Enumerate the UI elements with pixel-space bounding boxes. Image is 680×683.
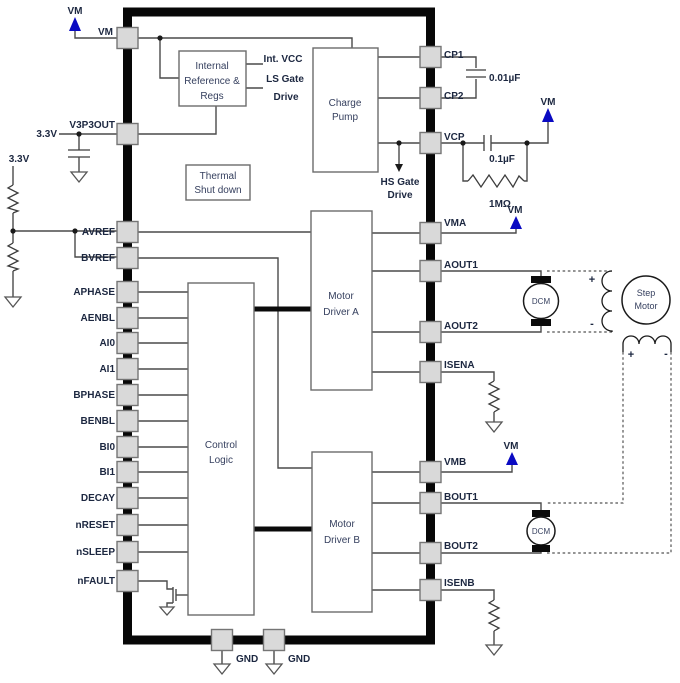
vm-arrow-top-icon [69, 17, 81, 31]
pin-pad-CP1 [420, 47, 441, 68]
diagram-svg: Internal Reference & Regs Int. VCC LS Ga… [0, 0, 680, 683]
control-logic-line1: Control [205, 440, 237, 451]
pin-pad-VMA [420, 223, 441, 244]
thermal-line2: Shut down [194, 185, 241, 196]
v33-label-v3p3: 3.3V [36, 129, 57, 140]
driver-a-line2: Driver A [323, 307, 359, 318]
pin-label-VCP: VCP [444, 132, 465, 143]
vm-label-top: VM [68, 6, 83, 17]
pin-pad-AOUT2 [420, 322, 441, 343]
pin-label-ISENA: ISENA [444, 360, 475, 371]
pin-pad-nSLEEP [117, 542, 138, 563]
pin-label-nRESET: nRESET [76, 520, 115, 531]
v33-label-divider: 3.3V [9, 154, 30, 165]
nfault-transistor [138, 581, 188, 615]
dcm-b-label: DCM [532, 527, 551, 536]
pin-label-BI1: BI1 [99, 467, 115, 478]
pin-pad-ISENA [420, 362, 441, 383]
isena-sense-resistor [441, 372, 502, 432]
pin-label-nSLEEP: nSLEEP [76, 547, 115, 558]
pin-pad-BENBL [117, 411, 138, 432]
nfault-ground-icon [160, 607, 174, 615]
block-motor-driver-b: Motor Driver B [312, 452, 372, 612]
pin-pad-AI1 [117, 359, 138, 380]
v3p3-ground-icon [71, 172, 87, 182]
hs-gate-label-line1: HS Gate [381, 177, 420, 188]
pin-pad-BOUT2 [420, 543, 441, 564]
divider-ground-icon [5, 297, 21, 307]
dcm-a-label: DCM [532, 297, 551, 306]
vm-arrow-vma-icon [510, 216, 522, 229]
charge-pump-line2: Pump [332, 112, 359, 123]
pin-pad-BPHASE [117, 385, 138, 406]
pin-label-BOUT2: BOUT2 [444, 541, 478, 552]
pin-pad-BOUT1 [420, 493, 441, 514]
pin-label-AI0: AI0 [99, 338, 115, 349]
pin-pad-AOUT1 [420, 261, 441, 282]
vm-label-vmb: VM [504, 441, 519, 452]
internal-ref-line2: Reference & [184, 76, 240, 87]
pin-label-VMA: VMA [444, 218, 466, 229]
pin-label-AVREF: AVREF [82, 227, 115, 238]
pin-pad-nFAULT [117, 571, 138, 592]
thermal-line1: Thermal [200, 171, 237, 182]
pin-pad-AVREF [117, 222, 138, 243]
driver-b-line2: Driver B [324, 535, 360, 546]
pin-label-BVREF: BVREF [81, 253, 115, 264]
gnd2-ground-icon [266, 664, 282, 674]
pin-label-DECAY: DECAY [81, 493, 115, 504]
pin-pad-AI0 [117, 333, 138, 354]
winding-a-minus: - [590, 318, 594, 330]
pin-label-ISENB: ISENB [444, 578, 475, 589]
vm-label-vcp: VM [541, 97, 556, 108]
step-motor-line1: Step [637, 288, 656, 298]
pin-label-BOUT1: BOUT1 [444, 492, 478, 503]
pin-label-APHASE: APHASE [73, 287, 115, 298]
pin-pad-nRESET [117, 515, 138, 536]
pin-pad-ISENB [420, 580, 441, 601]
stepper-winding-b: + - [547, 336, 671, 553]
pin-label-GND1: GND [236, 654, 258, 665]
isenb-sense-resistor [441, 590, 502, 655]
block-thermal-shutdown: Thermal Shut down [186, 165, 250, 200]
pin-label-nFAULT: nFAULT [77, 576, 115, 587]
pin-label-AI1: AI1 [99, 364, 115, 375]
pin-pad-VM [117, 28, 138, 49]
driver-b-line1: Motor [329, 519, 355, 530]
pin-pad-DECAY [117, 488, 138, 509]
charge-pump-line1: Charge [329, 98, 362, 109]
pin-pad-APHASE [117, 282, 138, 303]
block-motor-driver-a: Motor Driver A [311, 211, 372, 390]
driver-a-line1: Motor [328, 291, 354, 302]
pin-label-BENBL: BENBL [81, 416, 115, 427]
pin-label-AENBL: AENBL [81, 313, 115, 324]
block-diagram: Internal Reference & Regs Int. VCC LS Ga… [0, 0, 680, 683]
isenb-ground-icon [486, 645, 502, 655]
block-charge-pump: Charge Pump [313, 48, 378, 172]
control-logic-line2: Logic [209, 455, 233, 466]
vcp-junction-dot [396, 140, 401, 145]
pin-pad-VMB [420, 462, 441, 483]
vcp-network: VM 0.1µF 1MΩ [441, 97, 556, 210]
pin-pad-BI0 [117, 437, 138, 458]
internal-ref-line1: Internal [195, 61, 228, 72]
winding-b-minus: - [664, 348, 668, 360]
vm-arrow-vmb-icon [506, 452, 518, 465]
vm-supply-top: VM VM [68, 6, 118, 38]
ls-gate-label-line1: LS Gate [266, 74, 304, 85]
vcp-cap-value: 0.1µF [489, 154, 515, 165]
isena-ground-icon [486, 422, 502, 432]
ls-gate-label-line2: Drive [273, 92, 298, 103]
pin-pad-V3P3OUT [117, 124, 138, 145]
chip-outline [128, 12, 431, 640]
block-internal-reference: Internal Reference & Regs [179, 51, 246, 106]
step-motor: Step Motor [622, 276, 670, 324]
gnd1-ground-icon [214, 664, 230, 674]
pin-pad-CP2 [420, 88, 441, 109]
hs-gate-arrow [395, 164, 403, 172]
pin-label-VM: VM [98, 27, 113, 38]
pin-label-V3P3OUT: V3P3OUT [69, 120, 115, 131]
pin-label-AOUT1: AOUT1 [444, 260, 478, 271]
pin-label-BPHASE: BPHASE [73, 390, 115, 401]
left-pin-labels: V3P3OUT AVREF BVREF APHASE AENBL AI0 AI1… [69, 120, 115, 587]
pin-pad-BI1 [117, 462, 138, 483]
hs-gate-label-line2: Drive [387, 190, 412, 201]
pin-label-CP1: CP1 [444, 50, 464, 61]
pin-label-BI0: BI0 [99, 442, 115, 453]
step-motor-line2: Motor [634, 301, 657, 311]
cp-cap-value: 0.01µF [489, 73, 520, 84]
vm-junction-dot [157, 35, 162, 40]
pin-pad-BVREF [117, 248, 138, 269]
vm-label-vma: VM [508, 205, 523, 216]
pin-pad-VCP [420, 133, 441, 154]
pin-label-AOUT2: AOUT2 [444, 321, 478, 332]
vm-arrow-vcp-icon [542, 108, 554, 122]
v3p3out-external: 3.3V [36, 129, 117, 182]
block-control-logic: Control Logic [188, 283, 254, 615]
pin-pad-GND1 [212, 630, 233, 651]
pin-pad-GND2 [264, 630, 285, 651]
winding-a-plus: + [589, 274, 595, 286]
pin-label-GND2: GND [288, 654, 310, 665]
pin-label-CP2: CP2 [444, 91, 464, 102]
right-pin-labels: CP1 CP2 VCP VMA AOUT1 AOUT2 ISENA VMB BO… [444, 50, 478, 589]
internal-ref-line3: Regs [200, 91, 223, 102]
winding-b-plus: + [628, 349, 634, 361]
pin-label-VMB: VMB [444, 457, 466, 468]
pin-pad-AENBL [117, 308, 138, 329]
int-vcc-label: Int. VCC [264, 54, 303, 65]
